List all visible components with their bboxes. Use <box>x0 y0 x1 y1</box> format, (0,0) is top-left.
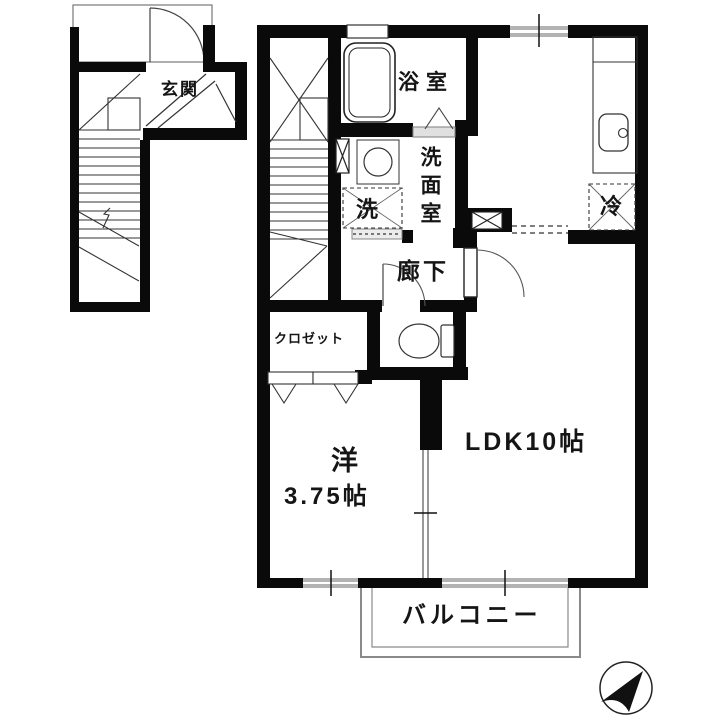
stairwell-walls <box>70 25 247 312</box>
western-room-window <box>303 570 358 596</box>
kitchen-counter-icon <box>593 37 637 173</box>
closet-label: クロゼット <box>274 332 344 345</box>
pipe-duct-icon <box>336 139 349 173</box>
hallway-label: 廊下 <box>397 260 449 283</box>
entrance-porch-outline <box>73 5 212 62</box>
kitchen-window <box>510 14 568 47</box>
floor-plan-linework <box>0 0 720 720</box>
closet-folding-doors-icon <box>268 372 358 403</box>
staircase-outer-icon <box>79 74 140 281</box>
hallway-ldk-door-icon <box>464 248 524 297</box>
washroom-threshold <box>352 229 402 239</box>
western-room-label: 洋 <box>331 448 358 475</box>
balcony-label: バルコニー <box>402 604 542 628</box>
bathroom-window <box>347 25 388 38</box>
balcony-sliding-window <box>442 570 568 596</box>
bath-folding-door-icon <box>413 108 455 137</box>
western-room-size: 3.75帖 <box>284 485 370 509</box>
washroom-label: 洗面室 <box>419 146 440 230</box>
sliding-partition-icon <box>414 450 437 578</box>
bathtub-icon <box>344 43 395 122</box>
laundry-label: 洗 <box>356 199 378 221</box>
entrance-label: 玄関 <box>161 81 199 98</box>
kitchen-open-boundary <box>512 226 568 233</box>
refrigerator-label: 冷 <box>600 196 622 218</box>
ldk-label: LDK10帖 <box>465 430 587 455</box>
kitchen-duct-icon <box>472 212 502 229</box>
entrance-door-arc-icon <box>150 8 204 62</box>
staircase-unit-icon <box>270 58 328 298</box>
floor-plan: 玄関 浴室 洗面室 洗 冷 廊下 クロゼット 洋 3.75帖 LDK10帖 バル… <box>0 0 720 720</box>
bathroom-label: 浴室 <box>398 72 454 93</box>
washroom-sink-icon <box>357 140 399 184</box>
compass-icon <box>600 662 652 714</box>
toilet-icon <box>399 324 454 358</box>
